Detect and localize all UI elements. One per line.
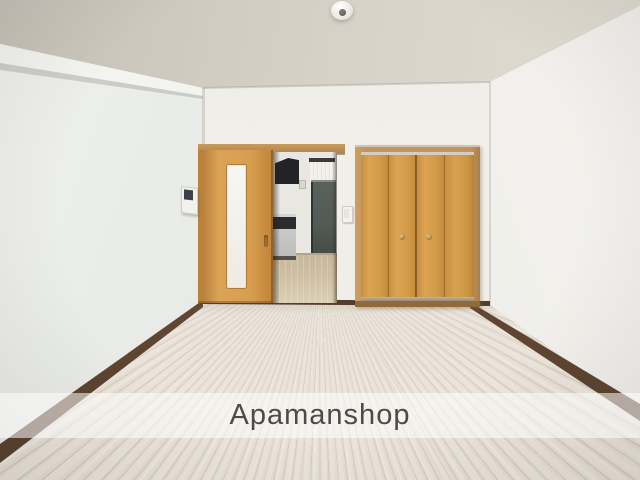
door-frosted-glass <box>227 165 246 288</box>
closet-frame-bottom <box>355 301 480 307</box>
closet-knob <box>399 234 405 240</box>
kitchen-wall-panel <box>299 180 306 189</box>
closet-panel <box>361 152 389 297</box>
door-jamb-left <box>273 152 280 303</box>
hallway-floor <box>273 255 337 303</box>
ceiling-light <box>331 1 353 20</box>
kitchen-doorway <box>273 152 337 303</box>
closet-panel <box>417 152 445 297</box>
watermark-text: Apamanshop <box>230 399 411 432</box>
closet <box>355 145 480 307</box>
closet-doors <box>361 152 474 297</box>
door-jamb-right <box>332 152 337 303</box>
closet-panel <box>389 152 417 297</box>
light-switch <box>342 206 353 223</box>
door-handle <box>264 235 268 247</box>
room-photo: Apamanshop <box>0 0 640 480</box>
closet-track <box>361 152 474 155</box>
watermark-band: Apamanshop <box>0 393 640 438</box>
sliding-door <box>198 150 273 303</box>
closet-panel <box>445 152 474 297</box>
intercom <box>181 186 198 215</box>
intercom-screen <box>184 189 193 200</box>
closet-knob <box>426 234 432 240</box>
